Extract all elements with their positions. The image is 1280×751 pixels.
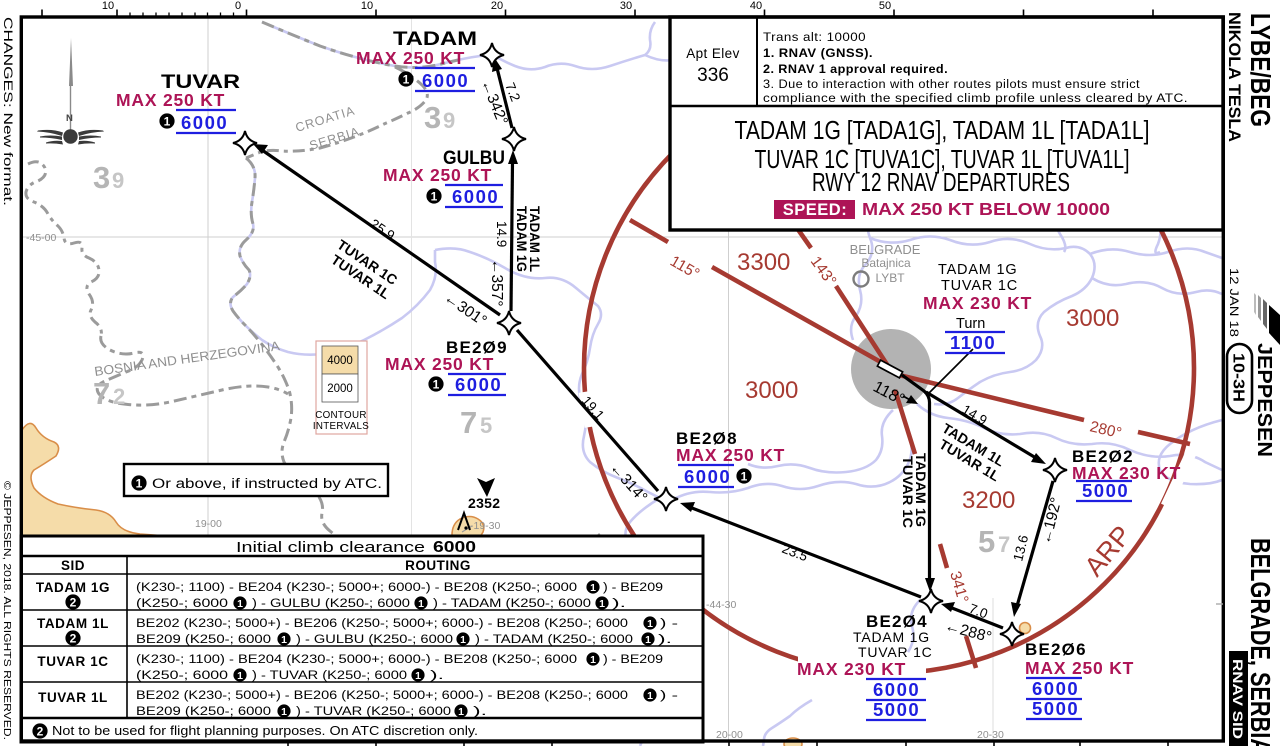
- svg-text:© JEPPESEN, 2018. ALL RIGHTS R: © JEPPESEN, 2018. ALL RIGHTS RESERVED.: [1, 481, 13, 740]
- svg-text:2000: 2000: [327, 383, 353, 395]
- svg-text:7: 7: [460, 405, 477, 440]
- svg-text:3300: 3300: [737, 249, 790, 276]
- svg-text:3: 3: [93, 160, 110, 195]
- svg-text:TADAM 1G: TADAM 1G: [938, 262, 1017, 278]
- svg-text:RWY 12 RNAV DEPARTURES: RWY 12 RNAV DEPARTURES: [812, 167, 1070, 197]
- svg-text:) - BE209: ) - BE209: [603, 652, 663, 666]
- svg-text:(K250-; 6000: (K250-; 6000: [136, 668, 228, 682]
- svg-text:10: 10: [361, 0, 373, 12]
- svg-text:20: 20: [491, 0, 503, 12]
- svg-text:Batajnica: Batajnica: [861, 256, 911, 270]
- svg-text:TADAM 1G [TADA1G], TADAM 1L [T: TADAM 1G [TADA1G], TADAM 1L [TADA1L]: [735, 115, 1150, 145]
- svg-text:6000: 6000: [1032, 678, 1079, 699]
- svg-text:CHANGES: New format.: CHANGES: New format.: [1, 17, 13, 206]
- svg-text:SPEED:: SPEED:: [783, 201, 847, 219]
- svg-text:).: ).: [473, 704, 487, 718]
- svg-text:Trans alt: 10000: Trans alt: 10000: [763, 30, 866, 44]
- svg-text:) -: ) -: [660, 688, 678, 702]
- svg-text:JEPPESEN: JEPPESEN: [1253, 343, 1275, 457]
- svg-text:1. RNAV (GNSS).: 1. RNAV (GNSS).: [763, 46, 873, 60]
- svg-text:(K230-; 1100) - BE204 (K230-;: (K230-; 1100) - BE204 (K230-; 5000+; 600…: [136, 580, 577, 594]
- svg-text:5000: 5000: [1082, 480, 1129, 501]
- svg-text:←357°: ←357°: [488, 259, 505, 307]
- svg-text:9: 9: [112, 168, 124, 193]
- svg-text:30: 30: [620, 0, 632, 12]
- svg-text:1100: 1100: [950, 332, 996, 353]
- svg-text:SID: SID: [61, 558, 85, 573]
- svg-text:2: 2: [113, 384, 125, 409]
- svg-text:7: 7: [93, 376, 110, 411]
- svg-text:Initial climb clearance: Initial climb clearance: [236, 539, 425, 556]
- svg-text:5: 5: [480, 413, 492, 438]
- svg-text:) -: ) -: [660, 616, 678, 630]
- svg-text:10-3H: 10-3H: [1230, 353, 1247, 402]
- svg-text:MAX 250 KT: MAX 250 KT: [676, 445, 785, 465]
- svg-text:Not to be used for flight plan: Not to be used for flight planning purpo…: [52, 723, 478, 738]
- svg-text:Turn: Turn: [956, 316, 985, 332]
- svg-text:TADAM 1L: TADAM 1L: [527, 206, 543, 272]
- svg-text:MAX 250 KT: MAX 250 KT: [383, 165, 492, 185]
- svg-text:) - BE209: ) - BE209: [603, 580, 663, 594]
- svg-text:BELGRADE, SERBIA: BELGRADE, SERBIA: [1245, 538, 1276, 746]
- svg-text:BELGRADE: BELGRADE: [850, 242, 921, 257]
- svg-text:6000: 6000: [452, 186, 499, 207]
- svg-text:compliance with the specified: compliance with the specified climb prof…: [763, 91, 1188, 105]
- svg-text:LYBE/BEG: LYBE/BEG: [1245, 13, 1276, 127]
- svg-text:MAX 250 KT: MAX 250 KT: [356, 48, 465, 68]
- svg-text:BE202 (K230-; 5000+) - BE206 (: BE202 (K230-; 5000+) - BE206 (K250-; 500…: [136, 616, 628, 630]
- svg-text:3: 3: [424, 100, 441, 135]
- svg-text:TUVAR 1C: TUVAR 1C: [37, 654, 108, 669]
- svg-text:3000: 3000: [745, 377, 798, 404]
- svg-text:TADAM 1G: TADAM 1G: [36, 580, 110, 595]
- svg-text:2352: 2352: [468, 495, 500, 511]
- svg-text:NIKOLA TESLA: NIKOLA TESLA: [1225, 12, 1244, 142]
- svg-text:2. RNAV 1 approval required.: 2. RNAV 1 approval required.: [763, 62, 948, 76]
- svg-text:Or above, if instructed by ATC: Or above, if instructed by ATC.: [152, 476, 382, 491]
- svg-text:).: ).: [430, 668, 444, 682]
- svg-text:6000: 6000: [433, 539, 476, 556]
- svg-text:5000: 5000: [873, 699, 920, 720]
- svg-text:TADAM 1G: TADAM 1G: [853, 629, 930, 645]
- svg-text:0: 0: [235, 0, 241, 12]
- svg-text:) - TUVAR (K250-; 6000: ) - TUVAR (K250-; 6000: [296, 704, 451, 718]
- svg-text:12 JAN 18: 12 JAN 18: [1227, 268, 1239, 337]
- svg-text:10: 10: [102, 0, 114, 12]
- svg-text:BE202 (K230-; 5000+) - BE206 (: BE202 (K230-; 5000+) - BE206 (K250-; 500…: [136, 688, 628, 702]
- svg-text:6000: 6000: [422, 70, 469, 91]
- svg-text:20-00: 20-00: [716, 729, 743, 741]
- svg-text:MAX 250 KT BELOW 10000: MAX 250 KT BELOW 10000: [862, 199, 1110, 219]
- svg-text:) - GULBU (K250-; 6000: ) - GULBU (K250-; 6000: [296, 632, 453, 646]
- svg-text:20-30: 20-30: [977, 729, 1004, 741]
- svg-text:LYBT: LYBT: [875, 271, 905, 285]
- svg-text:6000: 6000: [873, 679, 920, 700]
- svg-text:(K230-; 1100) - BE204 (K230-;: (K230-; 1100) - BE204 (K230-; 5000+; 600…: [136, 652, 577, 666]
- svg-text:(K250-; 6000: (K250-; 6000: [136, 596, 228, 610]
- svg-text:-44-30: -44-30: [706, 599, 737, 611]
- svg-text:TADAM: TADAM: [393, 28, 477, 50]
- svg-text:MAX 250 KT: MAX 250 KT: [385, 354, 494, 374]
- svg-text:6000: 6000: [181, 112, 228, 133]
- svg-text:336: 336: [697, 65, 729, 86]
- svg-text:BE209 (K250-; 6000: BE209 (K250-; 6000: [136, 704, 271, 718]
- svg-text:50: 50: [879, 0, 891, 12]
- svg-text:) - TUVAR (K250-; 6000: ) - TUVAR (K250-; 6000: [252, 668, 407, 682]
- svg-text:TUVAR 1L: TUVAR 1L: [38, 690, 108, 705]
- svg-text:7: 7: [998, 532, 1010, 557]
- svg-text:TADAM 1L: TADAM 1L: [37, 616, 109, 631]
- svg-text:N: N: [66, 113, 73, 124]
- svg-text:3. Due to interaction with oth: 3. Due to interaction with other routes …: [763, 77, 1140, 91]
- svg-text:MAX 250 KT: MAX 250 KT: [116, 90, 225, 110]
- svg-text:MAX 230 KT: MAX 230 KT: [923, 293, 1032, 313]
- svg-text:9: 9: [443, 108, 455, 133]
- svg-text:BE209 (K250-; 6000: BE209 (K250-; 6000: [136, 632, 271, 646]
- svg-text:3200: 3200: [962, 487, 1015, 514]
- svg-text:Apt Elev: Apt Elev: [686, 46, 739, 61]
- svg-text:6000: 6000: [684, 466, 731, 487]
- svg-text:TUVAR 1C: TUVAR 1C: [900, 456, 916, 528]
- svg-text:) - TADAM (K250-; 6000: ) - TADAM (K250-; 6000: [475, 632, 633, 646]
- svg-text:) - GULBU (K250-; 6000: ) - GULBU (K250-; 6000: [252, 596, 410, 610]
- svg-text:INTERVALS: INTERVALS: [313, 421, 369, 432]
- svg-text:CONTOUR: CONTOUR: [315, 410, 366, 421]
- svg-text:BE2Ø6: BE2Ø6: [1025, 640, 1087, 659]
- svg-text:6000: 6000: [455, 374, 502, 395]
- svg-text:-45-00: -45-00: [26, 232, 57, 244]
- svg-text:) - TADAM (K250-; 6000: ) - TADAM (K250-; 6000: [433, 596, 591, 610]
- svg-text:MAX 250 KT: MAX 250 KT: [1025, 658, 1134, 678]
- svg-text:).: ).: [612, 596, 626, 610]
- svg-text:TUVAR 1C: TUVAR 1C: [941, 278, 1018, 294]
- svg-text:3000: 3000: [1066, 305, 1119, 332]
- svg-text:4000: 4000: [327, 355, 353, 367]
- svg-text:-19-30: -19-30: [470, 520, 501, 532]
- svg-text:TUVAR 1C: TUVAR 1C: [858, 644, 933, 660]
- svg-text:).: ).: [658, 632, 672, 646]
- svg-text:ROUTING: ROUTING: [405, 558, 471, 573]
- svg-text:40: 40: [750, 0, 762, 12]
- svg-text:MAX 230 KT: MAX 230 KT: [797, 659, 906, 679]
- svg-text:RNAV SID: RNAV SID: [1230, 659, 1245, 739]
- svg-text:19-00: 19-00: [195, 518, 222, 530]
- svg-text:14.9: 14.9: [494, 221, 509, 247]
- svg-text:5: 5: [978, 524, 995, 559]
- svg-text:5000: 5000: [1032, 698, 1079, 719]
